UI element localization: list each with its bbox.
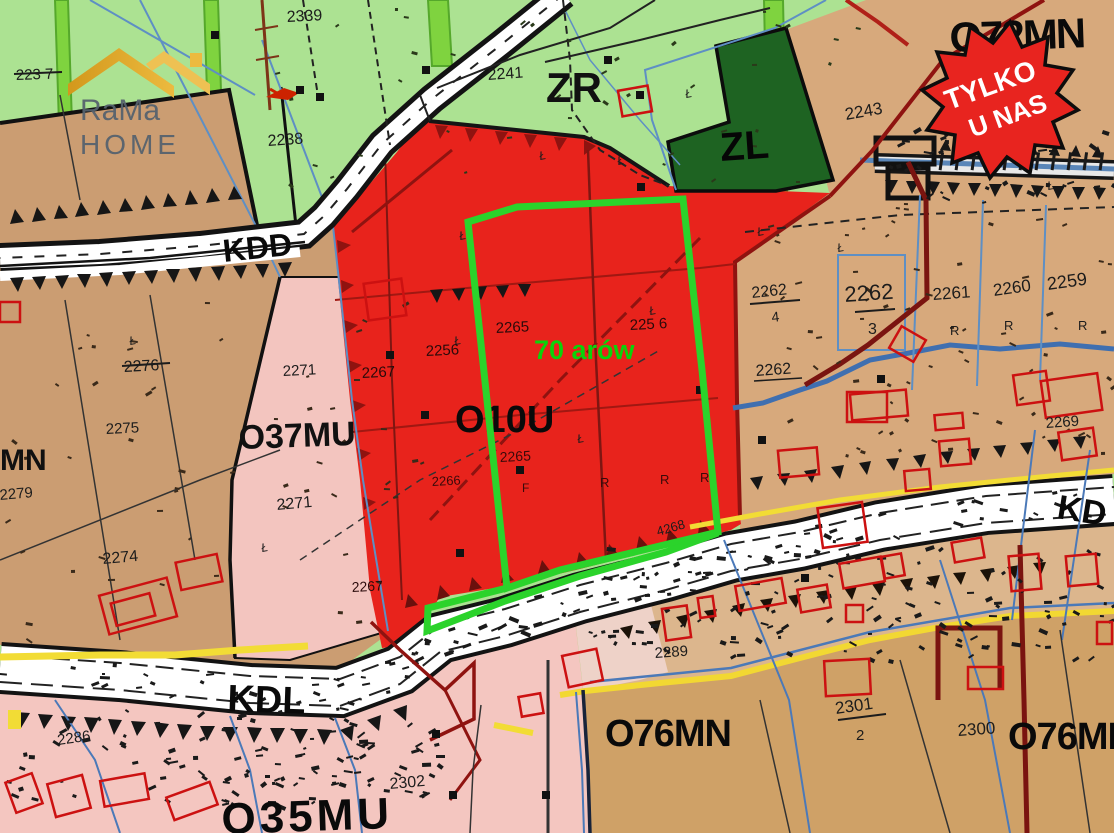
svg-text:R: R — [1078, 318, 1087, 333]
svg-text:ZL: ZL — [719, 123, 771, 170]
svg-text:2262: 2262 — [844, 279, 895, 307]
svg-text:ZR: ZR — [546, 64, 602, 111]
svg-text:2275: 2275 — [105, 419, 139, 438]
svg-text:KDL: KDL — [227, 678, 307, 723]
svg-text:O76MN: O76MN — [605, 713, 731, 755]
svg-text:223 7: 223 7 — [16, 66, 54, 84]
svg-text:O10U: O10U — [455, 399, 554, 441]
svg-text:2302: 2302 — [389, 773, 426, 793]
svg-text:KD: KD — [1055, 488, 1109, 533]
svg-text:2266: 2266 — [431, 473, 461, 489]
svg-text:R: R — [700, 470, 709, 485]
svg-text:2265: 2265 — [499, 447, 531, 465]
svg-text:R: R — [950, 323, 959, 338]
svg-text:O76MN: O76MN — [1008, 716, 1114, 758]
svg-text:2300: 2300 — [957, 718, 996, 740]
svg-text:HOME: HOME — [80, 129, 180, 160]
svg-text:3: 3 — [868, 321, 877, 338]
svg-text:R: R — [600, 475, 609, 490]
svg-text:O35MU: O35MU — [221, 789, 394, 833]
svg-text:O37MU: O37MU — [238, 415, 356, 457]
svg-text:2271: 2271 — [282, 361, 316, 380]
svg-text:2274: 2274 — [102, 548, 139, 568]
svg-text:R: R — [660, 472, 669, 487]
svg-text:2265: 2265 — [495, 318, 529, 337]
svg-text:2339: 2339 — [286, 7, 323, 26]
svg-text:F: F — [522, 481, 529, 495]
svg-text:2289: 2289 — [654, 643, 688, 662]
svg-text:2279: 2279 — [0, 484, 34, 504]
svg-text:2267: 2267 — [351, 577, 383, 595]
svg-text:MN: MN — [0, 444, 47, 477]
svg-text:225 6: 225 6 — [629, 315, 667, 334]
svg-text:R: R — [1004, 318, 1013, 333]
svg-text:2269: 2269 — [1045, 413, 1079, 432]
svg-text:KDD: KDD — [221, 226, 294, 269]
svg-text:2261: 2261 — [932, 282, 971, 304]
svg-text:2267: 2267 — [361, 363, 395, 382]
svg-text:2271: 2271 — [276, 494, 313, 514]
svg-text:2262: 2262 — [755, 361, 792, 380]
svg-text:70 arów: 70 arów — [534, 335, 636, 365]
svg-text:2: 2 — [856, 727, 864, 744]
svg-text:2238: 2238 — [267, 131, 304, 150]
svg-text:2241: 2241 — [487, 65, 524, 84]
svg-text:RaMa: RaMa — [80, 94, 160, 127]
